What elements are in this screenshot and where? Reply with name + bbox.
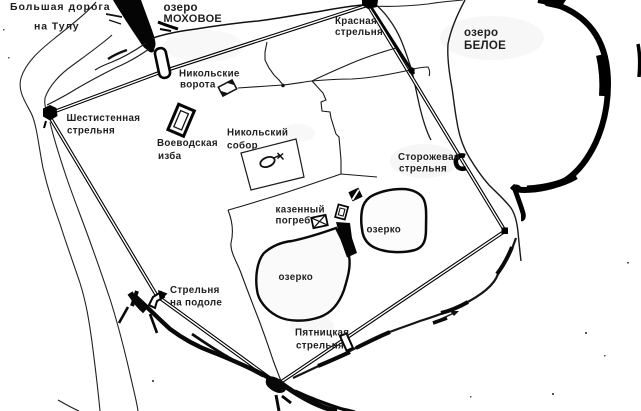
- svg-text:Шестистенная: Шестистенная: [67, 113, 141, 124]
- svg-text:стрельня: стрельня: [399, 164, 447, 175]
- svg-text:озеро: озеро: [164, 2, 198, 14]
- svg-text:стрельня: стрельня: [296, 341, 344, 352]
- svg-text:погреб: погреб: [276, 216, 311, 227]
- svg-text:БЕЛОЕ: БЕЛОЕ: [464, 40, 506, 52]
- svg-text:Красная: Красная: [335, 16, 377, 27]
- svg-text:стрельня: стрельня: [335, 27, 383, 38]
- svg-text:ворота: ворота: [180, 80, 216, 91]
- svg-text:Стрельня: Стрельня: [170, 285, 220, 296]
- svg-text:озерко: озерко: [367, 224, 402, 235]
- svg-text:изба: изба: [158, 151, 182, 162]
- svg-text:озеро: озеро: [464, 27, 498, 39]
- svg-text:Никольский: Никольский: [227, 128, 288, 139]
- svg-text:казенный: казенный: [276, 205, 325, 216]
- svg-text:на подоле: на подоле: [170, 297, 222, 308]
- svg-text:стрельня: стрельня: [67, 126, 115, 137]
- svg-text:Большая дорога: Большая дорога: [10, 1, 111, 13]
- svg-text:Пятницкая: Пятницкая: [295, 328, 349, 339]
- svg-text:на Тулу: на Тулу: [34, 21, 80, 33]
- svg-text:Никольские: Никольские: [179, 69, 240, 80]
- svg-text:озерко: озерко: [279, 272, 314, 283]
- svg-text:собор: собор: [227, 141, 258, 152]
- svg-text:Воеводская: Воеводская: [157, 138, 218, 149]
- svg-text:МОХОВОЕ: МОХОВОЕ: [164, 13, 223, 25]
- svg-text:Сторожевая: Сторожевая: [398, 152, 460, 163]
